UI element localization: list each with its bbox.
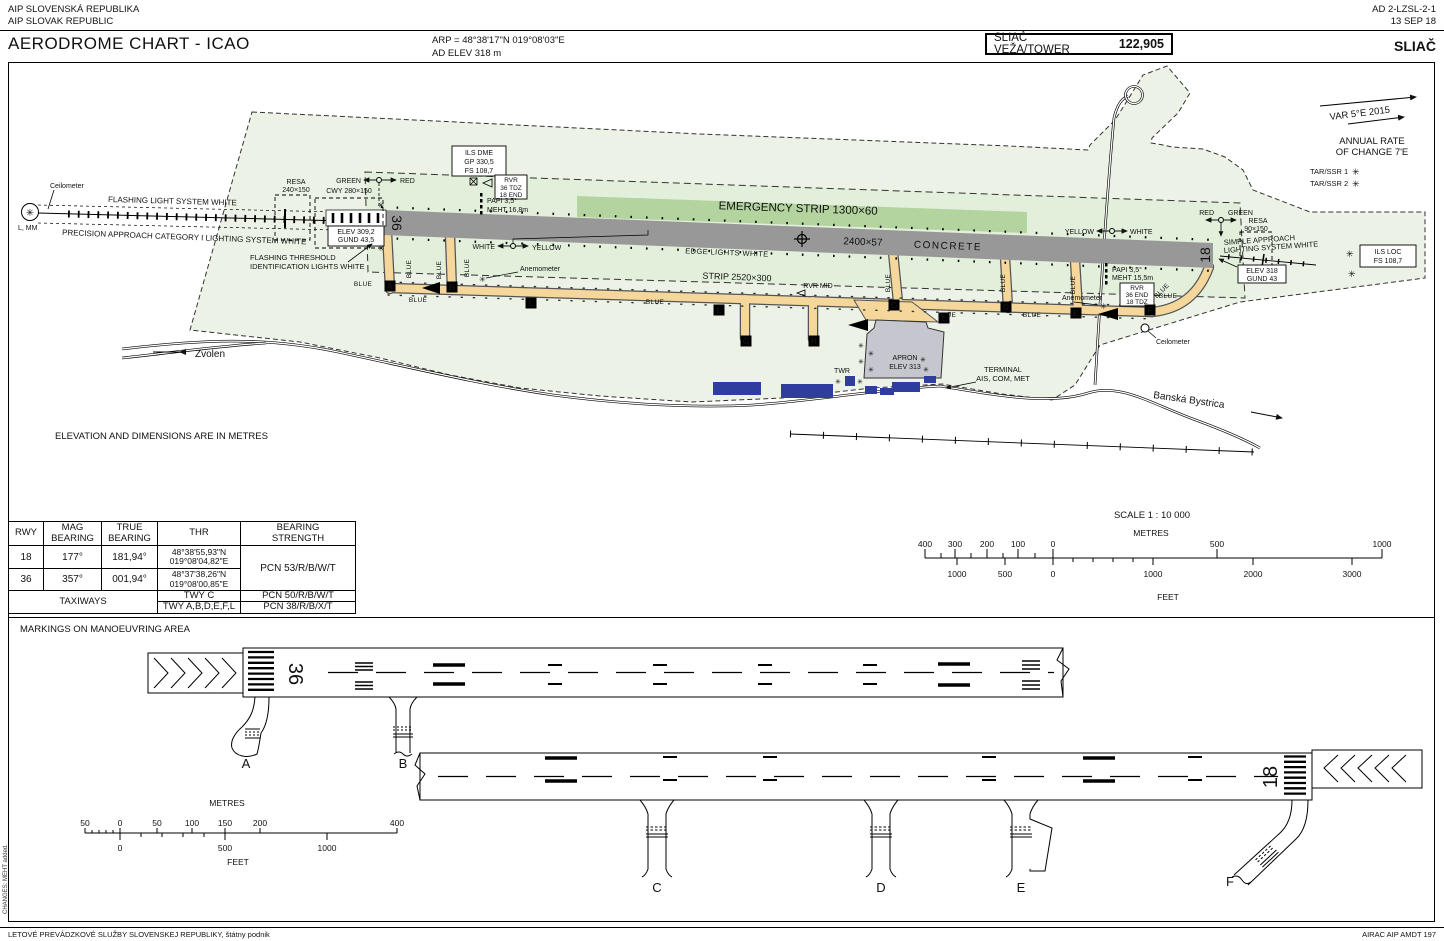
svg-text:G: G [743, 336, 750, 346]
resa-left-label: RESA [286, 179, 305, 186]
svg-text:BLUE: BLUE [1070, 276, 1077, 295]
svg-text:200: 200 [980, 539, 994, 549]
twr-label: TWR [834, 368, 850, 375]
railway [790, 434, 1254, 452]
scale-feet-label: FEET [1157, 592, 1179, 602]
taxiways-label: TAXIWAYS [9, 591, 158, 614]
rvr-left-1: 36 TDZ [500, 185, 522, 192]
aip-title-sk: AIP SLOVENSKÁ REPUBLIKA [8, 4, 139, 15]
markings-diagram: MARKINGS ON MANOEUVRING AREA [8, 617, 1436, 920]
red-label-left: RED [400, 178, 415, 185]
tower-frequency-box: SLIAČ VEŽA/TOWER 122,905 [985, 33, 1173, 55]
col-true: TRUEBEARING [102, 522, 158, 546]
twr-light-icon: ✳ [835, 378, 841, 386]
papi-left-label: PAPI 3,5° [487, 197, 517, 205]
red-label-right: RED [1199, 210, 1214, 217]
svg-text:400: 400 [390, 818, 404, 828]
runway-designator-36: 36 [389, 215, 405, 231]
scale-feet-ticks: 1000500 01000 20003000 [948, 569, 1362, 579]
radar-icon: ✳ [1352, 167, 1360, 177]
runway-data-table: RWY MAGBEARING TRUEBEARING THR BEARINGST… [8, 521, 356, 614]
svg-text:3000: 3000 [1343, 569, 1362, 579]
svg-text:METRES: METRES [209, 798, 245, 808]
table-row-18: 18177°181,94° 48°38'55,93"N019°08'04,82"… [9, 546, 356, 569]
svg-text:500: 500 [998, 569, 1012, 579]
svg-text:BLUE: BLUE [1023, 312, 1042, 319]
svg-text:✳: ✳ [868, 350, 874, 358]
marking-label-e: E [1017, 880, 1026, 895]
svg-text:1000: 1000 [318, 843, 337, 853]
chart-title: AERODROME CHART - ICAO [8, 34, 250, 54]
anemometer-right-icon: ✳ [1100, 302, 1107, 311]
svg-text:0: 0 [118, 843, 123, 853]
svg-text:50: 50 [152, 818, 162, 828]
resa-right-dim: 90×150 [1244, 226, 1268, 233]
svg-text:1000: 1000 [1373, 539, 1392, 549]
apron-label: APRON [893, 355, 918, 362]
svg-text:BLUE: BLUE [1159, 293, 1178, 300]
marking-label-c: C [652, 880, 661, 895]
elevation-note: ELEVATION AND DIMENSIONS ARE IN METRES [55, 431, 268, 442]
ils-dme-fs: FS 108,7 [465, 168, 494, 175]
ils-loc-label: ILS LOC [1375, 249, 1402, 256]
svg-text:D: D [1003, 302, 1009, 312]
yellow-label-left: YELLOW [532, 245, 562, 252]
svg-text:C: C [891, 300, 897, 310]
scale-metres-ticks: 400300 200100 0500 1000 [918, 539, 1392, 549]
svg-text:1000: 1000 [948, 569, 967, 579]
tar-ssr-1-label: TAR/SSR 1 [1310, 167, 1348, 176]
anemometer-right-label: Anemometer [1062, 295, 1103, 302]
col-thr: THR [158, 522, 241, 546]
svg-text:BLUE: BLUE [354, 281, 373, 288]
terminal-label: TERMINAL [984, 365, 1022, 374]
loc-antenna-icon: ✳ [1348, 269, 1356, 279]
terminal-services: AIS, COM, MET [976, 374, 1030, 383]
svg-text:BLUE: BLUE [885, 274, 892, 293]
svg-text:0: 0 [118, 818, 123, 828]
svg-text:F: F [1147, 305, 1152, 315]
ils-dme-gp: GP 330,5 [464, 159, 494, 166]
marking-designator-36: 36 [284, 663, 306, 685]
radar-icon: ✳ [1352, 179, 1360, 189]
footer-publisher: LETOVÉ PREVÁDZKOVÉ SLUŽBY SLOVENSKEJ REP… [8, 930, 270, 939]
changes-note: CHANGES: MEHT added. [3, 782, 9, 914]
anemometer-left-icon: ✳ [479, 275, 486, 284]
papi-right-label: PAPI 3,5° [1112, 266, 1142, 274]
svg-text:E: E [1073, 308, 1079, 318]
meht-left-label: MEHT 16,8m [487, 207, 528, 214]
apron-elev: ELEV 313 [889, 364, 921, 371]
svg-text:0: 0 [1051, 569, 1056, 579]
markings-title: MARKINGS ON MANOEUVRING AREA [20, 624, 191, 635]
svg-text:✳: ✳ [868, 366, 874, 374]
svg-text:H: H [811, 336, 817, 346]
svg-text:FEET: FEET [227, 857, 249, 867]
svg-text:50: 50 [80, 818, 90, 828]
arp-coordinates: ARP = 48°38'17"N 019°08'03"E [432, 35, 565, 46]
twr-light-icon: ✳ [857, 378, 863, 386]
scale-title: SCALE 1 : 10 000 [1114, 510, 1190, 521]
airport-name: SLIAČ [1394, 38, 1436, 54]
marking-label-f: F [1226, 874, 1234, 889]
elev-36: ELEV 309,2 [337, 229, 374, 236]
resa-right-label: RESA [1248, 218, 1267, 225]
yellow-label-right: YELLOW [1065, 229, 1095, 236]
marking-label-a: A [242, 756, 251, 771]
green-label-left: GREEN [336, 178, 361, 185]
runway-designator-18: 18 [1197, 247, 1213, 263]
col-strength: BEARINGSTRENGTH [241, 522, 356, 546]
tower-frequency: 122,905 [1119, 37, 1164, 51]
rvr-mid-label: RVR MID [803, 283, 832, 290]
svg-text:0: 0 [1051, 539, 1056, 549]
zvolen-label: Zvolen [195, 349, 225, 360]
header-divider [0, 30, 1444, 31]
col-rwy: RWY [9, 522, 44, 546]
flashing-threshold-1: FLASHING THRESHOLD [250, 253, 336, 262]
rvr-left-title: RVR [504, 177, 518, 184]
ad-elevation: AD ELEV 318 m [432, 48, 501, 59]
gund-36: GUND 43,5 [338, 237, 374, 244]
svg-text:BLUE: BLUE [646, 299, 665, 306]
svg-text:✳: ✳ [923, 366, 929, 374]
svg-text:✳: ✳ [858, 358, 864, 366]
footer-divider [0, 927, 1444, 928]
marking-label-d: D [876, 880, 885, 895]
ceilometer-left-label: Ceilometer [50, 183, 85, 190]
doc-date: 13 SEP 18 [1391, 16, 1436, 27]
pcn-runway: PCN 53/R/B/W/T [241, 546, 356, 591]
green-label-right: GREEN [1228, 210, 1253, 217]
svg-text:A: A [387, 281, 393, 291]
svg-text:1000: 1000 [1144, 569, 1163, 579]
svg-text:100: 100 [185, 818, 199, 828]
svg-text:✳: ✳ [858, 342, 864, 350]
svg-text:BLUE: BLUE [409, 297, 428, 304]
svg-text:500: 500 [1210, 539, 1224, 549]
white-label-right: WHITE [1130, 229, 1153, 236]
svg-text:2000: 2000 [1244, 569, 1263, 579]
rvr-right-title: RVR [1130, 285, 1144, 292]
svg-text:150: 150 [218, 818, 232, 828]
meht-right-label: MEHT 15,5m [1112, 275, 1153, 282]
svg-text:BLUE: BLUE [406, 260, 413, 279]
svg-text:L: L [716, 305, 721, 315]
gund-18: GUND 43 [1247, 276, 1277, 283]
flashing-light-label: FLASHING LIGHT SYSTEM WHITE [108, 195, 237, 207]
svg-text:BLUE: BLUE [938, 312, 957, 319]
ils-loc-fs: FS 108,7 [1374, 258, 1403, 265]
table-row-twy-c: TAXIWAYS TWY CPCN 50/R/B/W/T [9, 591, 356, 602]
svg-text:✳: ✳ [920, 356, 926, 364]
svg-text:L: L [528, 298, 533, 308]
loc-antenna-icon: ✳ [1346, 249, 1354, 259]
tower-label: SLIAČ VEŽA/TOWER [994, 32, 1105, 56]
annual-rate-1: ANNUAL RATE [1339, 136, 1404, 147]
anemometer-left-label: Anemometer [520, 266, 561, 273]
marking-label-b: B [399, 756, 408, 771]
svg-text:BLUE: BLUE [464, 259, 471, 278]
col-mag: MAGBEARING [44, 522, 102, 546]
locator-label: L, MM [18, 225, 38, 232]
svg-text:BLUE: BLUE [436, 261, 443, 280]
svg-text:100: 100 [1011, 539, 1025, 549]
doc-ref: AD 2-LZSL-2-1 [1372, 4, 1436, 15]
scale-bar-line [925, 549, 1382, 565]
ceilometer-right-label: Ceilometer [1156, 339, 1191, 346]
scale-metres-label: METRES [1133, 528, 1169, 538]
svg-text:200: 200 [253, 818, 267, 828]
annual-rate-2: OF CHANGE 7'E [1336, 147, 1409, 158]
footer-amendment: AIRAC AIP AMDT 197 [1362, 930, 1436, 939]
marking-designator-18: 18 [1260, 766, 1282, 788]
ils-dme-label: ILS DME [465, 150, 493, 157]
svg-text:400: 400 [918, 539, 932, 549]
aip-title-en: AIP SLOVAK REPUBLIC [8, 16, 113, 27]
svg-text:B: B [449, 282, 455, 292]
svg-text:500: 500 [218, 843, 232, 853]
cwy-label: CWY 280×150 [326, 188, 372, 195]
ceilometer-right-line [1148, 331, 1156, 338]
banska-arrow [1251, 412, 1282, 418]
scale-bar-markings: METRES 500 50100 150200 400 0500 1000 FE… [80, 798, 404, 867]
elev-18: ELEV 318 [1246, 268, 1278, 275]
runway-dimensions: 2400×57 [843, 236, 883, 249]
svg-text:BLUE: BLUE [1000, 274, 1007, 293]
rvr-right-1: 36 END [1126, 292, 1149, 299]
svg-text:300: 300 [948, 539, 962, 549]
flashing-threshold-2: IDENTIFICATION LIGHTS WHITE [250, 262, 364, 271]
scale-bar-main: SCALE 1 : 10 000 METRES 400300 200100 05… [890, 505, 1444, 610]
white-label-left: WHITE [472, 244, 495, 251]
resa-left-dim: 240×150 [282, 187, 310, 194]
flasher-icon: ✳ [26, 208, 34, 219]
ceilometer-right-icon [1141, 324, 1149, 332]
tar-ssr-2-label: TAR/SSR 2 [1310, 179, 1348, 188]
